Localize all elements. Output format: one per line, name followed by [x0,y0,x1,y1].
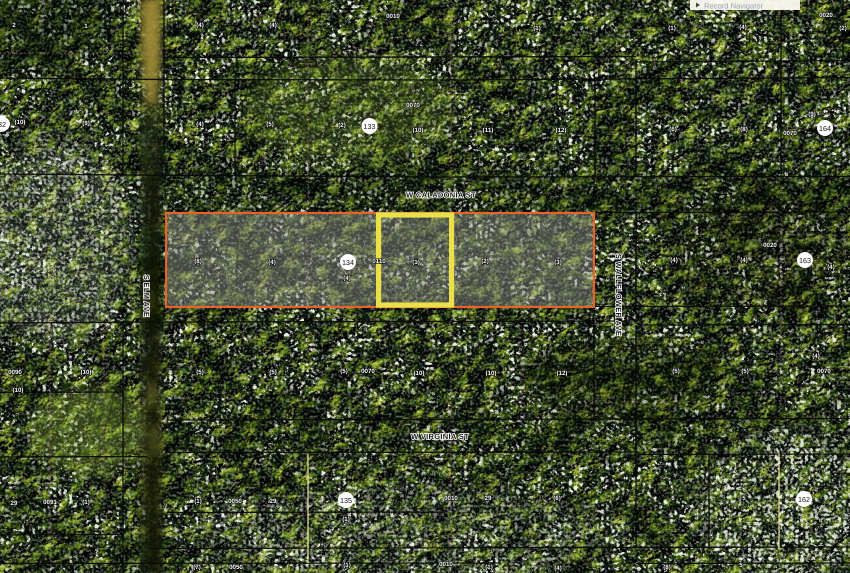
svg-text:4: 4 [807,475,811,482]
svg-text:(1): (1) [82,499,90,506]
svg-text:29: 29 [485,495,492,502]
svg-text:S ELM AVE: S ELM AVE [142,275,151,317]
svg-text:(5): (5) [741,368,749,375]
svg-text:(8): (8) [663,564,671,571]
svg-text:5: 5 [739,562,743,569]
svg-text:(1): (1) [194,498,202,505]
svg-text:(4): (4) [343,275,351,282]
svg-text:(8): (8) [740,126,748,133]
svg-text:W VIRGINIA ST: W VIRGINIA ST [411,432,469,441]
svg-text:(3): (3) [554,259,562,266]
svg-text:29: 29 [11,500,18,507]
svg-text:0010: 0010 [386,13,400,20]
svg-text:(10): (10) [413,370,424,377]
svg-text:(6): (6) [669,126,677,133]
svg-text:5: 5 [742,495,746,502]
svg-text:135: 135 [340,496,352,505]
svg-text:133: 133 [364,122,376,131]
svg-text:(1): (1) [485,564,493,571]
svg-text:0020: 0020 [763,242,777,249]
svg-text:(1): (1) [343,562,351,569]
svg-text:(4): (4) [554,565,562,572]
svg-text:(4): (4) [196,22,204,29]
svg-text:0010: 0010 [444,495,458,502]
svg-text:32: 32 [0,120,6,129]
svg-text:(2): (2) [481,258,489,265]
svg-text:(4): (4) [739,24,747,31]
svg-text:(4): (4) [827,264,835,271]
svg-text:29: 29 [270,498,277,505]
svg-text:0091: 0091 [43,499,57,506]
svg-text:(1): (1) [533,25,541,32]
svg-text:164: 164 [819,124,831,133]
svg-text:0010: 0010 [439,561,453,568]
svg-text:(11): (11) [483,127,494,134]
svg-text:(4): (4) [812,353,820,360]
svg-text:0070: 0070 [817,368,831,375]
svg-text:0050: 0050 [228,498,242,505]
svg-text:(4): (4) [268,259,276,266]
svg-text:(10): (10) [14,119,25,126]
svg-text:134: 134 [342,258,354,267]
svg-text:(5): (5) [266,121,274,128]
svg-text:(10): (10) [485,370,496,377]
svg-text:0070: 0070 [783,130,797,137]
svg-text:162: 162 [798,495,810,504]
svg-text:(12): (12) [556,370,567,377]
svg-text:0090: 0090 [8,369,22,376]
svg-text:163: 163 [799,256,811,265]
svg-text:W CALADONIA ST: W CALADONIA ST [406,191,476,200]
svg-text:(5): (5) [672,368,680,375]
svg-text:Record Navigator: Record Navigator [704,1,764,10]
svg-text:(9): (9) [82,120,90,127]
svg-text:S WALLFLOWER AVE: S WALLFLOWER AVE [614,254,623,336]
svg-text:(12): (12) [555,127,566,134]
svg-text:(2): (2) [338,122,346,129]
svg-text:0050: 0050 [229,564,243,571]
svg-text:(4): (4) [740,257,748,264]
svg-text:0070: 0070 [406,102,420,109]
svg-text:(1): (1) [342,516,350,523]
svg-text:0070: 0070 [361,368,375,375]
svg-text:(2): (2) [839,25,847,32]
svg-text:1: 1 [84,23,88,30]
svg-text:(5): (5) [269,369,277,376]
svg-text:(8): (8) [194,258,202,265]
svg-text:(4): (4) [670,257,678,264]
svg-text:(6): (6) [553,495,561,502]
svg-text:0110: 0110 [372,258,386,265]
svg-text:(9): (9) [808,111,816,118]
svg-text:(5): (5) [196,369,204,376]
svg-text:(4): (4) [196,121,204,128]
svg-text:(7): (7) [193,564,201,571]
svg-text:(10): (10) [412,127,423,134]
svg-text:6: 6 [671,495,675,502]
svg-text:0020: 0020 [819,12,833,19]
svg-text:(1): (1) [412,259,420,266]
svg-text:(5): (5) [340,368,348,375]
svg-text:(10): (10) [80,369,91,376]
svg-text:2: 2 [12,22,16,29]
svg-text:(4): (4) [269,22,277,29]
svg-text:(10): (10) [12,387,23,394]
svg-text:(1): (1) [668,25,676,32]
